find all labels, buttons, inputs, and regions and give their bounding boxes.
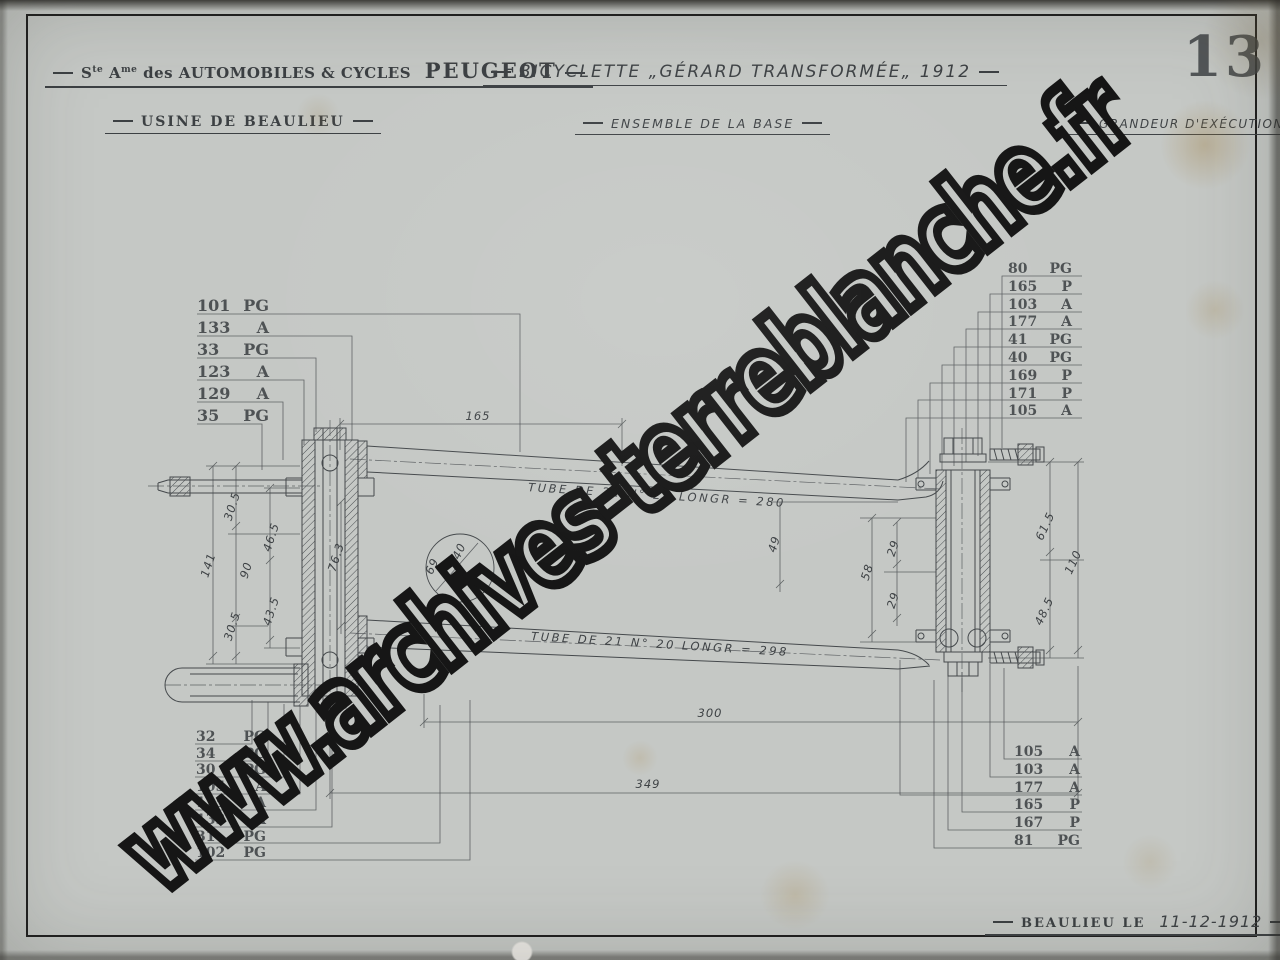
part-label: 105A [1008,403,1072,421]
dash-decoration [1270,921,1280,923]
dash-decoration [802,122,822,124]
part-label: 169P [1008,368,1072,386]
part-label: 129A [197,384,269,406]
part-label: 103A [1008,297,1072,315]
footer-place: BEAULIEU LE [1021,916,1145,931]
part-label: 35PG [197,406,269,428]
footer-date: 11-12-1912 [1159,912,1262,931]
dim-165: 165 [466,409,491,423]
axle-end-bottom [990,647,1044,668]
scanned-blueprint-page: Ste Ame des AUTOMOBILES & CYCLES PEUGEOT… [0,0,1280,960]
part-label: 41PG [1008,332,1072,350]
dash-decoration [583,122,603,124]
dash-decoration [53,72,73,74]
part-label: 80PG [1008,261,1072,279]
part-label: 123A [197,362,269,384]
dash-decoration [353,120,373,122]
part-label: 177A [1014,780,1080,798]
sheet-number: 13 [1183,24,1267,90]
part-label: 105A [1014,744,1080,762]
part-label: 103A [1014,762,1080,780]
part-label: 33PG [197,340,269,362]
part-label: 133A [197,318,269,340]
dim-349: 349 [636,777,661,791]
part-label: 177A [1008,314,1072,332]
dim-300: 300 [698,706,723,720]
part-label: 171P [1008,386,1072,404]
part-label: 40PG [1008,350,1072,368]
footer-date-line: BEAULIEU LE 11-12-1912 [985,912,1280,936]
dash-decoration [979,71,999,73]
dash-decoration [491,71,511,73]
factory-name: USINE DE BEAULIEU [105,114,381,134]
part-label: 101PG [197,296,269,318]
part-labels-top-left: 101PG133A33PG123A129A35PG [197,296,269,428]
part-label: 81PG [1014,833,1080,851]
part-label: 165P [1008,279,1072,297]
part-label: 165P [1014,797,1080,815]
part-label: 167P [1014,815,1080,833]
rear-hub-assembly [916,428,1044,692]
drawing-title: BICYCLETTE „GÉRARD TRANSFORMÉE„ 1912 [483,62,1007,86]
dash-decoration [113,120,133,122]
part-labels-top-right: 80PG165P103A177A41PG40PG169P171P105A [1008,261,1072,421]
dash-decoration [993,921,1013,923]
drawing-subtitle: ENSEMBLE DE LA BASE [575,116,830,135]
part-labels-bottom-right: 105A103A177A165P167P81PG [1014,744,1080,851]
